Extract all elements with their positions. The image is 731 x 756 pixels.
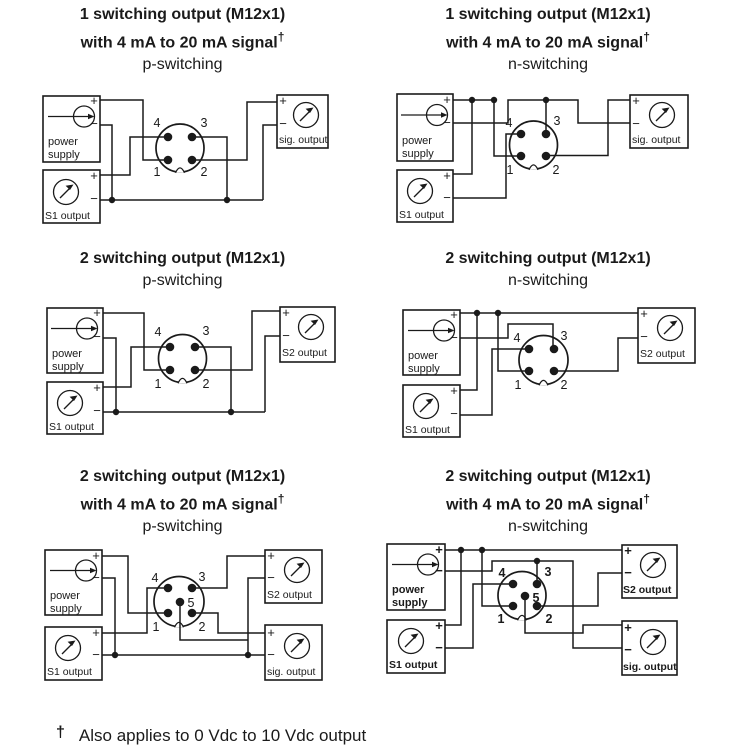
- meter-icon: [641, 553, 666, 578]
- junction-dot: [543, 97, 549, 103]
- box-label: S1 output: [405, 424, 450, 436]
- minus-terminal: −: [90, 116, 98, 131]
- footnote-dagger: †: [56, 724, 65, 742]
- meter-icon: [299, 315, 324, 340]
- box-label: S2 output: [282, 347, 327, 359]
- power-supply-box: + − power supply: [387, 542, 445, 610]
- plus-terminal: +: [450, 383, 458, 398]
- pin-label-2: 2: [203, 377, 210, 391]
- plus-terminal: +: [92, 548, 100, 563]
- pin-3: [550, 345, 559, 354]
- meter-icon: [641, 630, 666, 655]
- power-supply-box: + − power supply: [43, 93, 100, 162]
- pin-label-1: 1: [155, 377, 162, 391]
- current-source-icon: [401, 105, 448, 126]
- pin-label-1: 1: [507, 163, 514, 177]
- pin-label-4: 4: [499, 566, 506, 580]
- current-source-icon: [50, 560, 97, 581]
- junction-dot: [474, 310, 480, 316]
- panel-2-switching-p: 2 switching output (M12x1) p-switching +…: [0, 240, 365, 460]
- s1-output-box: + − S1 output: [397, 168, 453, 222]
- minus-terminal: −: [93, 403, 101, 418]
- junction-dot: [495, 310, 501, 316]
- power-supply-box: + − power supply: [403, 307, 460, 375]
- panel-1-switching-p: 1 switching output (M12x1) with 4 mA to …: [0, 0, 365, 240]
- pin-label-5: 5: [533, 591, 540, 605]
- meter-icon: [650, 103, 675, 128]
- panel-2-switching-n: 2 switching output (M12x1) n-switching +…: [365, 240, 731, 460]
- pin-label-3: 3: [201, 116, 208, 130]
- pin-label-1: 1: [498, 612, 505, 626]
- panel-2-switching-signal-n: 2 switching output (M12x1) with 4 mA to …: [365, 460, 731, 710]
- junction-dot: [113, 409, 119, 415]
- junction-dot: [458, 547, 464, 553]
- junction-dot: [534, 558, 540, 564]
- meter-icon: [285, 634, 310, 659]
- plus-terminal: +: [282, 305, 290, 320]
- minus-terminal: −: [267, 647, 275, 662]
- minus-terminal: −: [443, 190, 451, 205]
- sig-output-box: + − sig. output: [630, 93, 688, 148]
- minus-terminal: −: [640, 329, 648, 344]
- box-label: S2 output: [640, 348, 685, 360]
- meter-icon: [285, 558, 310, 583]
- s2-output-box: + − S2 output: [265, 548, 322, 603]
- meter-icon: [408, 179, 433, 204]
- pin-label-2: 2: [553, 163, 560, 177]
- minus-terminal: −: [93, 329, 101, 344]
- box-label: S1 output: [45, 210, 90, 222]
- sig-output-box: + − sig. output: [622, 620, 677, 675]
- box-label: S2 output: [267, 589, 312, 601]
- power-supply-box: + − power supply: [47, 305, 103, 373]
- junction-dot: [112, 652, 118, 658]
- junction-dot: [224, 197, 230, 203]
- plus-terminal: +: [640, 306, 648, 321]
- box-label: power: [392, 584, 425, 596]
- meter-icon: [399, 629, 424, 654]
- plus-terminal: +: [92, 625, 100, 640]
- meter-icon: [54, 180, 79, 205]
- minus-terminal: −: [450, 330, 458, 345]
- minus-terminal: −: [632, 116, 640, 131]
- box-label: S1 output: [49, 421, 94, 433]
- minus-terminal: −: [279, 116, 287, 131]
- minus-terminal: −: [624, 642, 632, 657]
- pin-label-2: 2: [546, 612, 553, 626]
- plus-terminal: +: [90, 93, 98, 108]
- wiring-diagram-sheet: 1 switching output (M12x1) with 4 mA to …: [0, 0, 731, 756]
- pin-label-2: 2: [201, 165, 208, 179]
- sig-output-box: + − sig. output: [265, 625, 322, 680]
- plus-terminal: +: [93, 380, 101, 395]
- junction-dot: [469, 97, 475, 103]
- box-label: sig. output: [632, 134, 681, 146]
- sig-output-box: + − sig. output: [277, 93, 328, 148]
- m12-connector: 4 3 1 2: [514, 329, 568, 392]
- box-label: power: [402, 135, 432, 147]
- pin-label-4: 4: [155, 325, 162, 339]
- plus-terminal: +: [624, 543, 632, 558]
- pin-label-1: 1: [515, 378, 522, 392]
- panel-2-switching-signal-p: 2 switching output (M12x1) with 4 mA to …: [0, 460, 365, 710]
- pin-label-4: 4: [154, 116, 161, 130]
- minus-terminal: −: [443, 115, 451, 130]
- power-supply-box: + − power supply: [397, 92, 453, 161]
- meter-icon: [58, 391, 83, 416]
- box-label: S1 output: [399, 209, 444, 221]
- m12-connector-5pin: 4 3 5 1 2: [152, 570, 206, 634]
- pin-label-3: 3: [561, 329, 568, 343]
- current-source-icon: [51, 318, 98, 339]
- junction-dot: [245, 652, 251, 658]
- minus-terminal: −: [267, 570, 275, 585]
- box-label: power: [408, 350, 438, 362]
- current-source-icon: [408, 320, 455, 341]
- plus-terminal: +: [267, 548, 275, 563]
- pin-label-1: 1: [153, 620, 160, 634]
- pin-label-3: 3: [199, 570, 206, 584]
- box-label: S1 output: [47, 666, 92, 678]
- box-label: power: [48, 136, 78, 148]
- box-label: supply: [402, 148, 434, 160]
- meter-icon: [414, 394, 439, 419]
- pin-label-3: 3: [203, 324, 210, 338]
- minus-terminal: −: [282, 328, 290, 343]
- power-supply-box: + − power supply: [45, 548, 102, 615]
- footnote-text: Also applies to 0 Vdc to 10 Vdc output: [79, 726, 366, 746]
- s1-output-box: + − S1 output: [45, 625, 102, 680]
- box-label: power: [50, 590, 80, 602]
- box-label: power: [52, 348, 82, 360]
- meter-icon: [56, 636, 81, 661]
- pin-label-3: 3: [545, 565, 552, 579]
- s1-output-box: + − S1 output: [43, 168, 100, 223]
- minus-terminal: −: [92, 570, 100, 585]
- box-label: supply: [408, 363, 440, 375]
- plus-terminal: +: [435, 542, 443, 557]
- s1-output-box: + − S1 output: [403, 383, 460, 437]
- box-label: supply: [392, 597, 428, 609]
- pin-label-4: 4: [514, 331, 521, 345]
- meter-icon: [658, 316, 683, 341]
- box-label: sig. output: [267, 666, 316, 678]
- s2-output-box: + − S2 output: [638, 306, 695, 363]
- pin-label-2: 2: [561, 378, 568, 392]
- pin-label-5: 5: [188, 596, 195, 610]
- pin-label-3: 3: [554, 114, 561, 128]
- s2-output-box: + − S2 output: [622, 543, 677, 598]
- minus-terminal: −: [435, 563, 443, 578]
- m12-connector: 4 3 1 2: [506, 114, 561, 177]
- plus-terminal: +: [435, 618, 443, 633]
- plus-terminal: +: [90, 168, 98, 183]
- minus-terminal: −: [435, 640, 443, 655]
- plus-terminal: +: [279, 93, 287, 108]
- meter-icon: [294, 103, 319, 128]
- m12-connector: 4 3 1 2: [155, 324, 210, 391]
- pin-label-1: 1: [154, 165, 161, 179]
- panel-1-switching-n: 1 switching output (M12x1) with 4 mA to …: [365, 0, 731, 240]
- plus-terminal: +: [267, 625, 275, 640]
- minus-terminal: −: [624, 565, 632, 580]
- plus-terminal: +: [443, 168, 451, 183]
- pin-label-2: 2: [199, 620, 206, 634]
- minus-terminal: −: [90, 191, 98, 206]
- s1-output-box: + − S1 output: [387, 618, 445, 673]
- junction-dot: [228, 409, 234, 415]
- box-label: supply: [50, 603, 82, 615]
- junction-dot: [479, 547, 485, 553]
- plus-terminal: +: [93, 305, 101, 320]
- box-label: supply: [52, 361, 84, 373]
- current-source-icon: [48, 106, 95, 127]
- plus-terminal: +: [624, 620, 632, 635]
- minus-terminal: −: [450, 406, 458, 421]
- box-label: sig. output: [623, 661, 677, 673]
- pin-label-4: 4: [152, 571, 159, 585]
- plus-terminal: +: [450, 307, 458, 322]
- box-label: S1 output: [389, 659, 438, 671]
- current-source-icon: [392, 554, 439, 575]
- box-label: S2 output: [623, 584, 672, 596]
- plus-terminal: +: [632, 93, 640, 108]
- minus-terminal: −: [92, 647, 100, 662]
- junction-dot: [109, 197, 115, 203]
- m12-connector: 4 3 1 2: [154, 116, 208, 179]
- junction-dot: [491, 97, 497, 103]
- s1-output-box: + − S1 output: [47, 380, 103, 434]
- footnote: † Also applies to 0 Vdc to 10 Vdc output: [56, 726, 366, 746]
- box-label: sig. output: [279, 134, 328, 146]
- plus-terminal: +: [443, 92, 451, 107]
- box-label: supply: [48, 149, 80, 161]
- s2-output-box: + − S2 output: [280, 305, 335, 362]
